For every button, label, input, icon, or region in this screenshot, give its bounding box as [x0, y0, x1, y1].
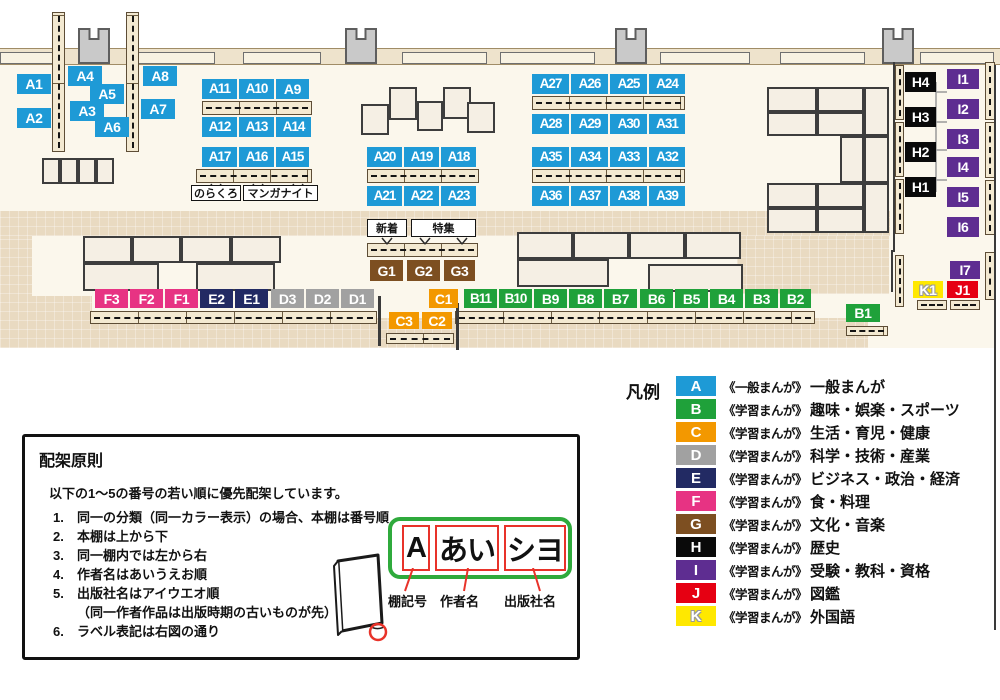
legend-item-K: K《学習まんが》外国語	[676, 606, 994, 626]
shelf-label-A33: A33	[610, 147, 647, 167]
shelf-label-A17: A17	[202, 147, 237, 167]
legend-color-box-A: A	[676, 376, 716, 396]
label-diagram-boxes: Aあいシヨ	[402, 525, 566, 571]
map-text-label-new-arrivals: 新着	[367, 219, 407, 237]
shelf-label-C3: C3	[389, 312, 419, 329]
shelf-label-A22: A22	[404, 186, 439, 206]
principle-text: ラベル表記は右図の通り	[77, 622, 220, 641]
shelf-label-A31: A31	[649, 114, 685, 134]
legend-label: 図鑑	[810, 583, 840, 604]
legend-item-E: E《学習まんが》ビジネス・政治・経済	[676, 468, 994, 488]
shelf-label-B4: B4	[710, 289, 743, 308]
legend-item-I: I《学習まんが》受験・教科・資格	[676, 560, 994, 580]
legend-label: 趣味・娯楽・スポーツ	[810, 399, 960, 420]
shelf-label-I4: I4	[947, 157, 979, 177]
shelf-label-A21: A21	[367, 186, 402, 206]
shelf-label-H3: H3	[905, 107, 936, 127]
legend-item-F: F《学習まんが》食・料理	[676, 491, 994, 511]
principle-number: 2.	[53, 527, 77, 546]
principles-intro: 以下の1～5の番号の若い順に優先配架しています。	[49, 483, 577, 502]
label-diagram-box-1: A	[402, 525, 430, 571]
legend-series: 《学習まんが》	[723, 400, 807, 419]
shelf-label-B2: B2	[780, 289, 811, 308]
shelf-label-A34: A34	[571, 147, 608, 167]
shelf-label-A37: A37	[571, 186, 608, 206]
legend-series: 《学習まんが》	[723, 561, 807, 580]
legend-color-box-C: C	[676, 422, 716, 442]
shelf-label-A12: A12	[202, 117, 237, 137]
principle-text: 作者名はあいうえお順	[77, 565, 207, 584]
legend-label: 文化・音楽	[810, 514, 885, 535]
legend-label: 歴史	[810, 537, 840, 558]
shelf-label-A23: A23	[441, 186, 476, 206]
principle-number: 5.	[53, 584, 77, 603]
legend-title: 凡例	[626, 378, 660, 403]
shelf-label-B1: B1	[846, 304, 880, 322]
legend-series: 《学習まんが》	[723, 584, 807, 603]
shelf-label-I1: I1	[947, 69, 979, 89]
shelf-label-B5: B5	[675, 289, 708, 308]
shelf-label-A7: A7	[141, 99, 175, 119]
shelf-label-A1: A1	[17, 74, 51, 94]
shelf-label-G1: G1	[370, 260, 403, 281]
shelf-label-F1: F1	[165, 289, 198, 308]
shelf-label-C1: C1	[429, 289, 458, 308]
shelf-label-H2: H2	[905, 142, 936, 162]
legend-label: 受験・教科・資格	[810, 560, 930, 581]
legend-item-C: C《学習まんが》生活・育児・健康	[676, 422, 994, 442]
label-diagram-captions: 棚記号作者名出版社名	[388, 591, 588, 607]
shelf-label-A16: A16	[239, 147, 274, 167]
legend-item-G: G《学習まんが》文化・音楽	[676, 514, 994, 534]
legend-item-J: J《学習まんが》図鑑	[676, 583, 994, 603]
shelf-label-A24: A24	[649, 74, 685, 94]
shelf-label-I3: I3	[947, 129, 979, 149]
shelf-label-A20: A20	[367, 147, 402, 167]
shelf-label-D2: D2	[306, 289, 339, 308]
shelf-label-F3: F3	[95, 289, 128, 308]
principle-text: 同一棚内では左から右	[77, 546, 207, 565]
legend-label: 食・料理	[810, 491, 870, 512]
shelf-label-C2: C2	[422, 312, 452, 329]
shelf-label-B3: B3	[745, 289, 778, 308]
shelf-label-B8: B8	[569, 289, 602, 308]
shelf-label-D1: D1	[341, 289, 374, 308]
shelf-label-A14: A14	[276, 117, 311, 137]
shelf-label-A2: A2	[17, 108, 51, 128]
shelf-label-A15: A15	[276, 147, 309, 167]
shelf-label-A32: A32	[649, 147, 685, 167]
shelf-label-A29: A29	[571, 114, 608, 134]
principle-number: 6.	[53, 622, 77, 641]
principle-text: 同一の分類（同一カラー表示）の場合、本棚は番号順	[77, 508, 389, 527]
shelf-label-A9: A9	[276, 79, 309, 99]
shelf-label-A11: A11	[202, 79, 237, 99]
principles-title: 配架原則	[39, 447, 577, 471]
legend-color-box-B: B	[676, 399, 716, 419]
legend-color-box-I: I	[676, 560, 716, 580]
shelf-label-B7: B7	[604, 289, 637, 308]
principle-number: 4.	[53, 565, 77, 584]
shelf-label-A28: A28	[532, 114, 569, 134]
shelf-label-J1: J1	[947, 281, 978, 298]
shelf-label-K1: K1	[913, 281, 943, 298]
shelf-label-I5: I5	[947, 187, 979, 207]
legend-label: 一般まんが	[810, 376, 885, 397]
shelf-label-H1: H1	[905, 177, 936, 197]
shelf-label-B10: B10	[499, 289, 532, 308]
shelf-label-I6: I6	[947, 217, 979, 237]
shelf-label-A30: A30	[610, 114, 647, 134]
legend-series: 《学習まんが》	[723, 446, 807, 465]
shelf-label-E1: E1	[235, 289, 268, 308]
shelf-label-A6: A6	[95, 117, 129, 137]
label-diagram-box-3: シヨ	[504, 525, 566, 571]
shelf-label-B6: B6	[640, 289, 673, 308]
label-diagram-caption-2: 作者名	[440, 591, 479, 610]
principle-text: 本棚は上から下	[77, 527, 168, 546]
shelf-label-A25: A25	[610, 74, 647, 94]
shelf-label-A19: A19	[404, 147, 439, 167]
shelf-label-G2: G2	[407, 260, 440, 281]
legend-color-box-K: K	[676, 606, 716, 626]
legend-color-box-E: E	[676, 468, 716, 488]
legend-label: ビジネス・政治・経済	[810, 468, 960, 489]
shelf-label-A10: A10	[239, 79, 274, 99]
shelf-label-A36: A36	[532, 186, 569, 206]
shelf-label-A26: A26	[571, 74, 608, 94]
legend-color-box-D: D	[676, 445, 716, 465]
principle-number: 1.	[53, 508, 77, 527]
legend-label: 外国語	[810, 606, 855, 627]
shelf-label-F2: F2	[130, 289, 163, 308]
map-text-label-feature: 特集	[411, 219, 476, 237]
legend-item-D: D《学習まんが》科学・技術・産業	[676, 445, 994, 465]
legend-series: 《学習まんが》	[723, 492, 807, 511]
principle-text: 出版社名はアイウエオ順	[77, 584, 219, 603]
shelf-label-B11: B11	[464, 289, 497, 308]
legend-color-box-G: G	[676, 514, 716, 534]
legend-label: 科学・技術・産業	[810, 445, 930, 466]
floor-map-page: A1A4A8A5A2A3A7A6A11A10A9A12A13A14A17A16A…	[0, 0, 1000, 700]
legend-series: 《学習まんが》	[723, 469, 807, 488]
shelf-label-A8: A8	[143, 66, 177, 86]
legend-item-B: B《学習まんが》趣味・娯楽・スポーツ	[676, 399, 994, 419]
label-diagram-caption-3: 出版社名	[504, 591, 556, 610]
shelf-label-I7: I7	[950, 261, 980, 279]
shelf-label-A35: A35	[532, 147, 569, 167]
shelf-label-D3: D3	[271, 289, 304, 308]
legend-series: 《学習まんが》	[723, 515, 807, 534]
legend-item-A: A《一般まんが》一般まんが	[676, 376, 994, 396]
shelf-label-A39: A39	[649, 186, 685, 206]
shelf-label-A38: A38	[610, 186, 647, 206]
shelf-label-B9: B9	[534, 289, 567, 308]
legend-color-box-H: H	[676, 537, 716, 557]
shelf-label-A4: A4	[68, 66, 102, 86]
legend-panel: 凡例 A《一般まんが》一般まんがB《学習まんが》趣味・娯楽・スポーツC《学習まん…	[622, 376, 994, 629]
label-diagram-caption-1: 棚記号	[388, 591, 427, 610]
shelf-label-A18: A18	[441, 147, 476, 167]
legend-series: 《学習まんが》	[723, 423, 807, 442]
legend-label: 生活・育児・健康	[810, 422, 930, 443]
legend-color-box-F: F	[676, 491, 716, 511]
principle-number: 3.	[53, 546, 77, 565]
legend-rows: A《一般まんが》一般まんがB《学習まんが》趣味・娯楽・スポーツC《学習まんが》生…	[676, 376, 994, 626]
legend-series: 《学習まんが》	[723, 538, 807, 557]
shelf-label-A27: A27	[532, 74, 569, 94]
legend-color-box-J: J	[676, 583, 716, 603]
principle-item-6: 6.ラベル表記は右図の通り	[53, 622, 577, 641]
map-text-label-manga-knight: マンガナイト	[243, 185, 318, 201]
label-diagram-box-2: あい	[435, 525, 499, 571]
legend-item-H: H《学習まんが》歴史	[676, 537, 994, 557]
legend-series: 《一般まんが》	[723, 377, 807, 396]
legend-series: 《学習まんが》	[723, 607, 807, 626]
shelf-label-A13: A13	[239, 117, 274, 137]
shelf-label-G3: G3	[444, 260, 475, 281]
shelf-label-H4: H4	[905, 72, 936, 92]
map-text-label-norakuro: のらくろ	[191, 185, 241, 201]
shelf-label-E2: E2	[200, 289, 233, 308]
shelf-label-I2: I2	[947, 99, 979, 119]
